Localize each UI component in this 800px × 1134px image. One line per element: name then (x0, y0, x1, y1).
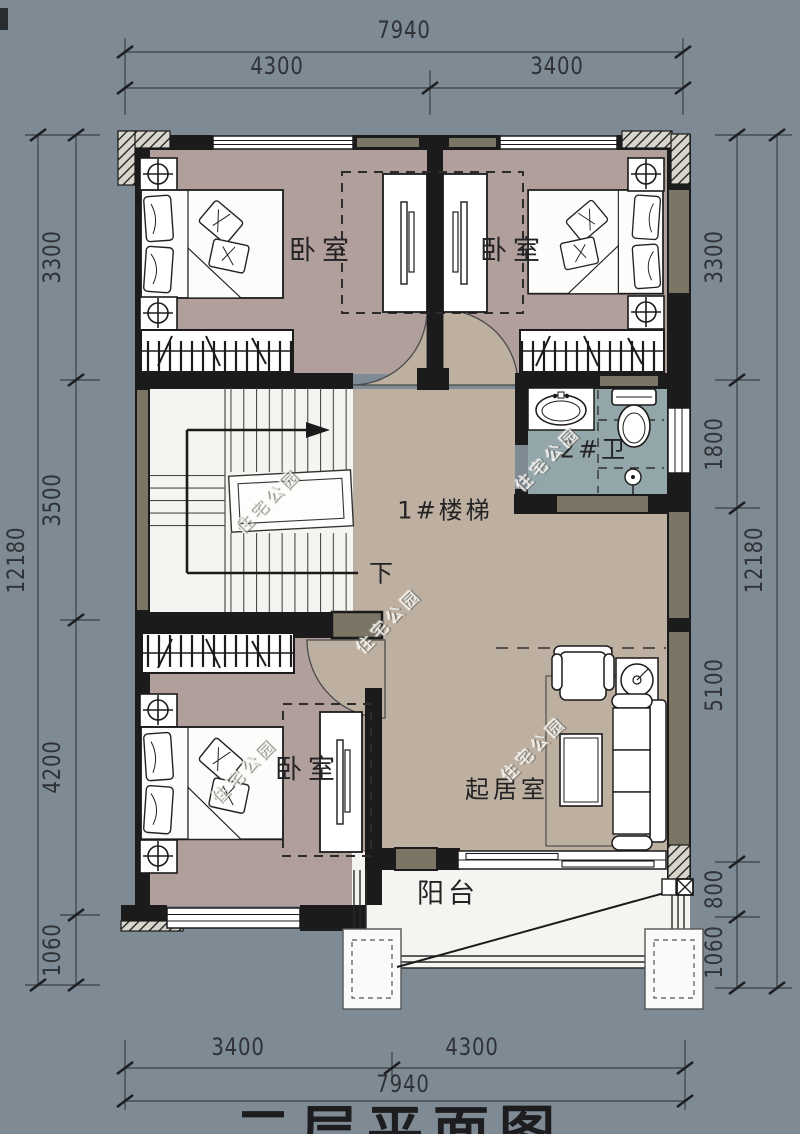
dim-right-seg-3: 5100 (700, 658, 728, 711)
dim-top-seg-1: 4300 (250, 52, 303, 80)
room-label-bedroom-top-left: 卧室 (289, 229, 355, 268)
dim-left-overall: 12180 (2, 527, 30, 594)
armchair (552, 646, 614, 700)
dim-right-overall: 12180 (740, 527, 768, 594)
room-label-bedroom-bottom-left: 卧室 (275, 748, 341, 787)
column-left (343, 929, 401, 1009)
dim-right-seg-2: 1800 (700, 417, 728, 470)
floor-plan-page: 卧室 卧室 2#卫 1#楼梯 下 卧室 起居室 阳台 7940 4300 340… (0, 0, 800, 1134)
room-label-staircase: 1#楼梯 (397, 491, 492, 526)
dim-top-overall: 7940 (377, 16, 430, 44)
dim-right-seg-5: 1060 (700, 925, 728, 978)
room-label-balcony: 阳台 (417, 872, 479, 911)
wardrobe (520, 330, 664, 372)
dim-bottom-seg-2: 4300 (445, 1033, 498, 1061)
rain-pipe (662, 879, 693, 895)
wardrobe (142, 633, 294, 673)
window-top-left (213, 136, 353, 149)
stair-down-label: 下 (369, 554, 393, 589)
closet-left (383, 174, 427, 312)
dim-left-seg-1: 3300 (38, 230, 66, 283)
dim-left-seg-3: 4200 (38, 740, 66, 793)
plan-title: 二层平面图 (235, 1088, 565, 1134)
sink (528, 388, 594, 430)
dim-top-seg-2: 3400 (530, 52, 583, 80)
sliding-door (458, 851, 666, 869)
dim-left-seg-4: 1060 (38, 923, 66, 976)
dim-left-seg-2: 3500 (38, 473, 66, 526)
coffee-table (560, 734, 602, 806)
wardrobe (141, 330, 293, 372)
window-bathroom (668, 408, 690, 473)
window-top-right (500, 136, 617, 149)
dim-bottom-seg-1: 3400 (211, 1033, 264, 1061)
column-right (645, 929, 703, 1009)
room-label-bedroom-top-right: 卧室 (480, 229, 546, 268)
window-bottom-bedroom (167, 908, 300, 928)
stray-mark (0, 8, 8, 30)
floor-plan-drawing (0, 0, 800, 1134)
dim-right-seg-4: 800 (700, 869, 728, 909)
dim-right-seg-1: 3300 (700, 230, 728, 283)
sofa (612, 694, 666, 850)
